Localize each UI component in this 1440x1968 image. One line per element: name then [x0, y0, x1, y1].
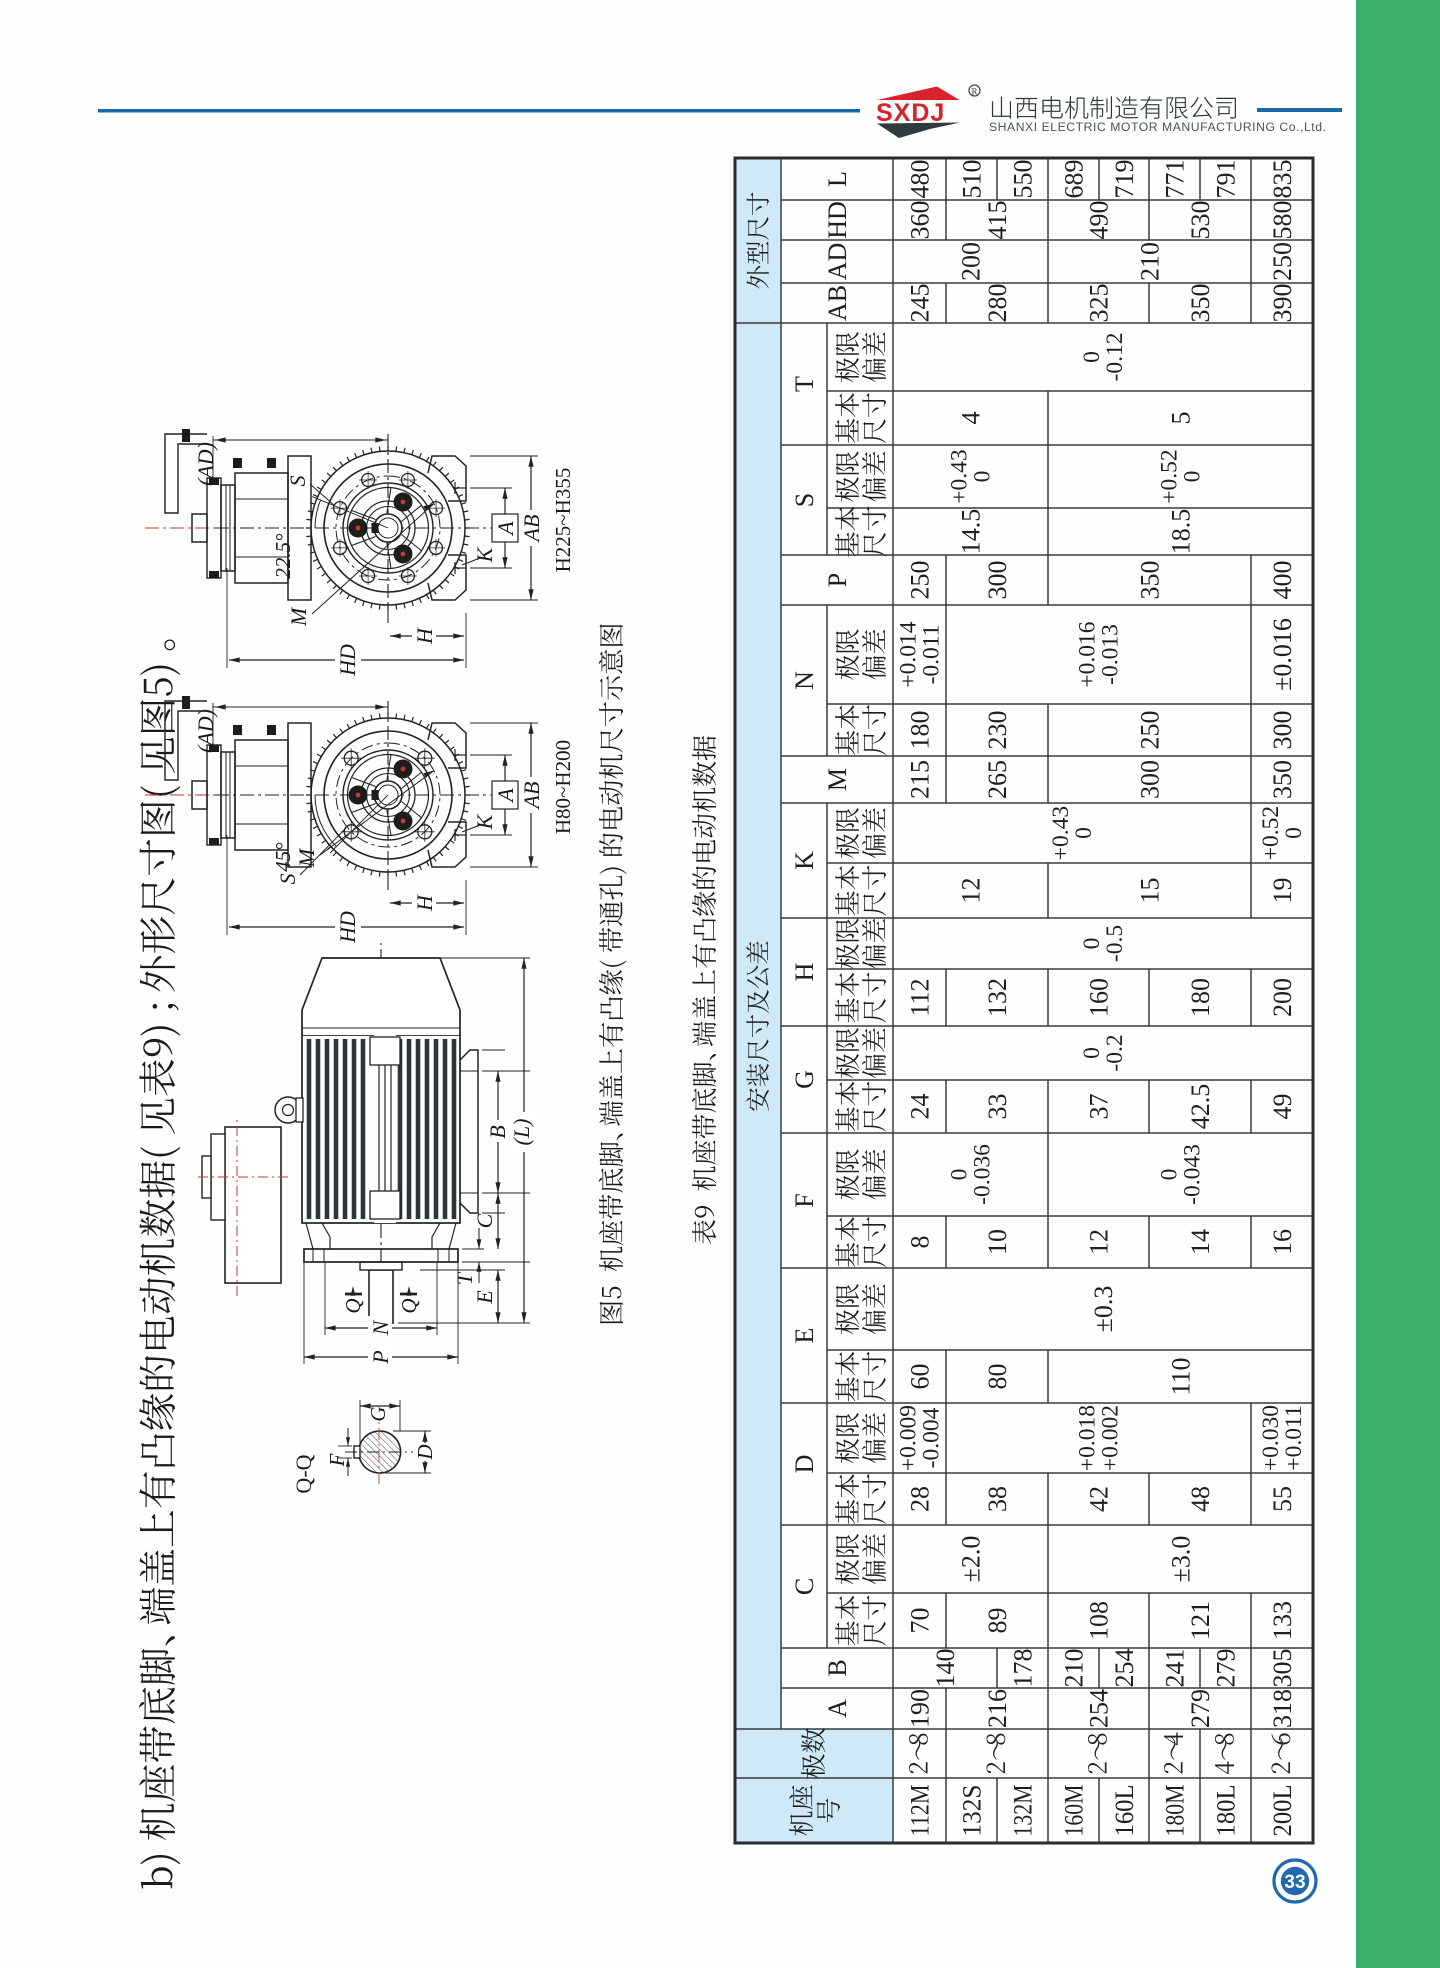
svg-text:H: H [412, 894, 437, 912]
svg-text:±2.0: ±2.0 [957, 1536, 986, 1583]
svg-text:200: 200 [957, 242, 986, 281]
svg-text:210: 210 [1060, 1649, 1089, 1688]
svg-text:108: 108 [1085, 1601, 1114, 1640]
svg-text:280: 280 [983, 284, 1012, 323]
svg-text:279: 279 [1212, 1649, 1241, 1688]
svg-text:0: 0 [1180, 471, 1206, 483]
svg-text:5: 5 [1167, 412, 1196, 425]
svg-text:±0.016: ±0.016 [1268, 618, 1297, 691]
svg-text:HD: HD [335, 911, 360, 944]
svg-text:M: M [286, 606, 311, 627]
svg-text:SHANXI ELECTRIC MOTOR MANUF: SHANXI ELECTRIC MOTOR MANUFACTURING Co.,… [989, 120, 1327, 134]
svg-text:(AD): (AD) [193, 442, 218, 486]
svg-text:24: 24 [906, 1094, 935, 1120]
svg-text:210: 210 [1136, 242, 1165, 281]
svg-text:22.5°: 22.5° [271, 533, 295, 579]
svg-text:SXDJ: SXDJ [876, 99, 945, 127]
svg-text:28: 28 [906, 1486, 935, 1512]
svg-text:241: 241 [1161, 1649, 1190, 1688]
svg-text:0: 0 [970, 471, 996, 483]
svg-text:N: N [368, 1319, 393, 1336]
svg-text:132M: 132M [1009, 1785, 1038, 1837]
svg-text:250: 250 [1268, 242, 1297, 281]
svg-text:80: 80 [983, 1364, 1012, 1390]
svg-text:42: 42 [1085, 1486, 1114, 1512]
svg-text:200: 200 [1268, 978, 1297, 1017]
svg-text:33: 33 [1284, 1872, 1305, 1893]
svg-text:D: D [790, 1455, 819, 1474]
svg-text:T: T [452, 1271, 477, 1285]
svg-text:160L: 160L [1110, 1785, 1139, 1837]
svg-text:-0.011: -0.011 [919, 625, 945, 685]
svg-text:216: 216 [983, 1689, 1012, 1728]
svg-text:K: K [472, 813, 497, 830]
svg-text:230: 230 [983, 711, 1012, 750]
svg-text:+0.002: +0.002 [1098, 1405, 1124, 1471]
svg-text:254: 254 [1110, 1649, 1139, 1688]
svg-text:279: 279 [1186, 1689, 1215, 1728]
svg-text:178: 178 [1009, 1649, 1038, 1688]
svg-text:180: 180 [906, 711, 935, 750]
svg-text:160M: 160M [1060, 1785, 1089, 1837]
svg-text:112: 112 [906, 978, 935, 1016]
svg-text:18.5: 18.5 [1167, 509, 1196, 555]
svg-text:254: 254 [1085, 1689, 1114, 1728]
svg-text:180L: 180L [1212, 1785, 1241, 1837]
svg-text:D: D [413, 1444, 437, 1460]
svg-text:300: 300 [1268, 711, 1297, 750]
svg-text:14.5: 14.5 [957, 509, 986, 555]
svg-text:15: 15 [1136, 878, 1165, 904]
svg-text:200L: 200L [1268, 1785, 1297, 1837]
svg-text:T: T [790, 376, 819, 392]
svg-text:-0.2: -0.2 [1102, 1034, 1128, 1071]
svg-text:400: 400 [1268, 561, 1297, 600]
svg-text:H80~H200: H80~H200 [551, 740, 575, 834]
svg-text:33: 33 [983, 1094, 1012, 1120]
svg-text:AD: AD [823, 243, 852, 281]
svg-text:Q: Q [341, 1298, 365, 1313]
svg-text:38: 38 [983, 1486, 1012, 1512]
svg-text:45°: 45° [271, 842, 295, 872]
svg-text:M: M [294, 847, 319, 868]
svg-text:±3.0: ±3.0 [1167, 1536, 1196, 1583]
svg-text:-0.013: -0.013 [1098, 624, 1124, 685]
svg-text:B: B [823, 1659, 852, 1676]
svg-text:121: 121 [1186, 1601, 1215, 1640]
svg-text:300: 300 [983, 561, 1012, 600]
svg-text:P: P [823, 573, 852, 587]
svg-text:215: 215 [906, 760, 935, 799]
svg-text:(L): (L) [509, 1119, 534, 1146]
svg-text:180: 180 [1186, 978, 1215, 1017]
svg-text:P: P [368, 1350, 393, 1364]
svg-text:K: K [790, 851, 819, 870]
svg-text:S: S [790, 493, 819, 507]
svg-text:C: C [472, 1213, 497, 1228]
svg-text:-0.12: -0.12 [1102, 333, 1128, 382]
svg-text:325: 325 [1085, 284, 1114, 323]
svg-text:H: H [412, 627, 437, 645]
svg-text:A: A [823, 1699, 852, 1718]
svg-text:12: 12 [1085, 1229, 1114, 1255]
svg-text:N: N [790, 671, 819, 690]
svg-text:-0.004: -0.004 [919, 1407, 945, 1468]
svg-text:48: 48 [1186, 1486, 1215, 1512]
svg-text:180M: 180M [1161, 1785, 1190, 1837]
svg-text:E: E [790, 1328, 819, 1344]
svg-text:-0.036: -0.036 [970, 1144, 996, 1205]
svg-text:112M: 112M [906, 1785, 935, 1837]
svg-text:12: 12 [957, 878, 986, 904]
svg-text:55: 55 [1268, 1486, 1297, 1512]
svg-text:M: M [823, 768, 852, 791]
svg-text:16: 16 [1268, 1229, 1297, 1255]
svg-text:0: 0 [1071, 827, 1097, 839]
svg-text:-0.043: -0.043 [1180, 1144, 1206, 1205]
svg-text:265: 265 [983, 760, 1012, 799]
svg-text:390: 390 [1268, 284, 1297, 323]
svg-text:250: 250 [906, 561, 935, 600]
svg-text:70: 70 [906, 1608, 935, 1634]
svg-text:318: 318 [1268, 1689, 1297, 1728]
svg-text:±0.3: ±0.3 [1089, 1286, 1118, 1333]
svg-text:G: G [790, 1070, 819, 1089]
svg-text:Q: Q [397, 1298, 421, 1313]
svg-text:0: 0 [1281, 827, 1307, 839]
svg-text:Q-Q: Q-Q [291, 1454, 316, 1493]
svg-text:H225~H355: H225~H355 [551, 468, 575, 573]
svg-text:H: H [790, 962, 819, 981]
svg-text:350: 350 [1136, 561, 1165, 600]
svg-text:C: C [790, 1578, 819, 1595]
svg-text:(AD): (AD) [193, 709, 218, 753]
svg-text:AB: AB [519, 782, 544, 811]
svg-text:160: 160 [1085, 978, 1114, 1017]
svg-text:14: 14 [1186, 1229, 1215, 1255]
svg-text:8: 8 [906, 1236, 935, 1249]
svg-text:E: E [472, 1290, 497, 1305]
svg-text:B: B [485, 1125, 510, 1138]
svg-text:305: 305 [1268, 1649, 1297, 1688]
svg-text:350: 350 [1268, 760, 1297, 799]
svg-text:37: 37 [1085, 1094, 1114, 1120]
svg-text:250: 250 [1136, 711, 1165, 750]
svg-text:132: 132 [983, 978, 1012, 1017]
svg-text:+0.011: +0.011 [1281, 1405, 1307, 1470]
svg-text:A: A [493, 521, 518, 537]
svg-text:89: 89 [983, 1608, 1012, 1634]
svg-text:133: 133 [1268, 1601, 1297, 1640]
svg-text:-0.5: -0.5 [1102, 925, 1128, 962]
svg-text:245: 245 [906, 284, 935, 323]
svg-text:F: F [325, 1453, 349, 1467]
svg-text:AB: AB [519, 515, 544, 544]
svg-text:350: 350 [1186, 284, 1215, 323]
svg-text:R: R [971, 87, 977, 97]
svg-text:132S: 132S [958, 1785, 987, 1837]
svg-text:S: S [285, 476, 310, 487]
svg-text:K: K [472, 546, 497, 563]
svg-text:190: 190 [906, 1689, 935, 1728]
svg-text:60: 60 [906, 1364, 935, 1390]
svg-text:49: 49 [1268, 1094, 1297, 1120]
svg-text:G: G [366, 1406, 390, 1421]
svg-text:10: 10 [983, 1229, 1012, 1255]
svg-text:110: 110 [1167, 1357, 1196, 1395]
svg-text:S: S [275, 874, 300, 885]
svg-text:42.5: 42.5 [1186, 1084, 1215, 1130]
svg-text:HD: HD [335, 644, 360, 677]
svg-text:4: 4 [957, 412, 986, 425]
svg-text:300: 300 [1136, 760, 1165, 799]
svg-text:19: 19 [1268, 878, 1297, 904]
svg-text:F: F [790, 1193, 819, 1207]
svg-text:140: 140 [931, 1649, 960, 1688]
svg-text:AB: AB [823, 285, 852, 321]
svg-text:A: A [493, 788, 518, 804]
